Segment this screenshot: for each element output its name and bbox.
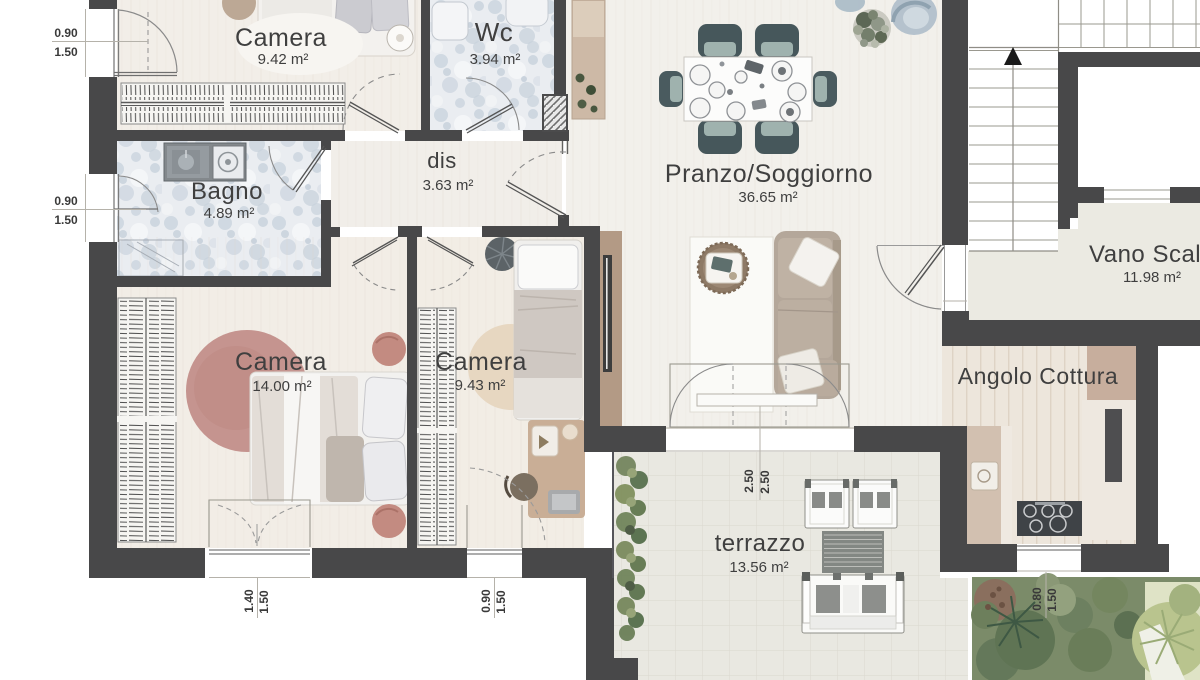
svg-text:1.50: 1.50 <box>494 590 508 614</box>
svg-text:Vano Scale: Vano Scale <box>1089 241 1200 268</box>
svg-text:2.50: 2.50 <box>758 470 772 494</box>
svg-text:0.90: 0.90 <box>54 194 78 208</box>
svg-text:Bagno: Bagno <box>191 178 263 205</box>
svg-text:36.65 m²: 36.65 m² <box>738 189 797 206</box>
svg-text:1.50: 1.50 <box>257 590 271 614</box>
svg-text:Camera: Camera <box>235 24 327 52</box>
svg-text:dis: dis <box>427 148 457 173</box>
svg-text:1.50: 1.50 <box>54 213 78 227</box>
svg-text:1.50: 1.50 <box>1045 588 1059 612</box>
svg-text:0.90: 0.90 <box>54 26 78 40</box>
svg-text:1.40: 1.40 <box>242 589 256 613</box>
svg-text:2.50: 2.50 <box>742 469 756 493</box>
svg-text:13.56 m²: 13.56 m² <box>729 559 788 576</box>
svg-text:9.43 m²: 9.43 m² <box>455 377 506 394</box>
svg-text:11.98 m²: 11.98 m² <box>1123 269 1181 286</box>
svg-text:Camera: Camera <box>235 348 327 376</box>
svg-text:3.63 m²: 3.63 m² <box>423 177 474 194</box>
svg-text:terrazzo: terrazzo <box>715 530 806 557</box>
svg-text:14.00 m²: 14.00 m² <box>252 378 311 395</box>
svg-text:3.94 m²: 3.94 m² <box>470 51 521 68</box>
svg-text:Angolo Cottura: Angolo Cottura <box>958 363 1118 389</box>
svg-text:Wc: Wc <box>475 17 514 47</box>
svg-text:0.80: 0.80 <box>1030 587 1044 611</box>
svg-text:Pranzo/Soggiorno: Pranzo/Soggiorno <box>665 160 873 188</box>
svg-text:9.42 m²: 9.42 m² <box>258 51 309 68</box>
svg-text:4.89 m²: 4.89 m² <box>204 205 255 222</box>
svg-text:Camera: Camera <box>435 348 527 376</box>
svg-text:0.90: 0.90 <box>479 589 493 613</box>
svg-text:1.50: 1.50 <box>54 45 78 59</box>
